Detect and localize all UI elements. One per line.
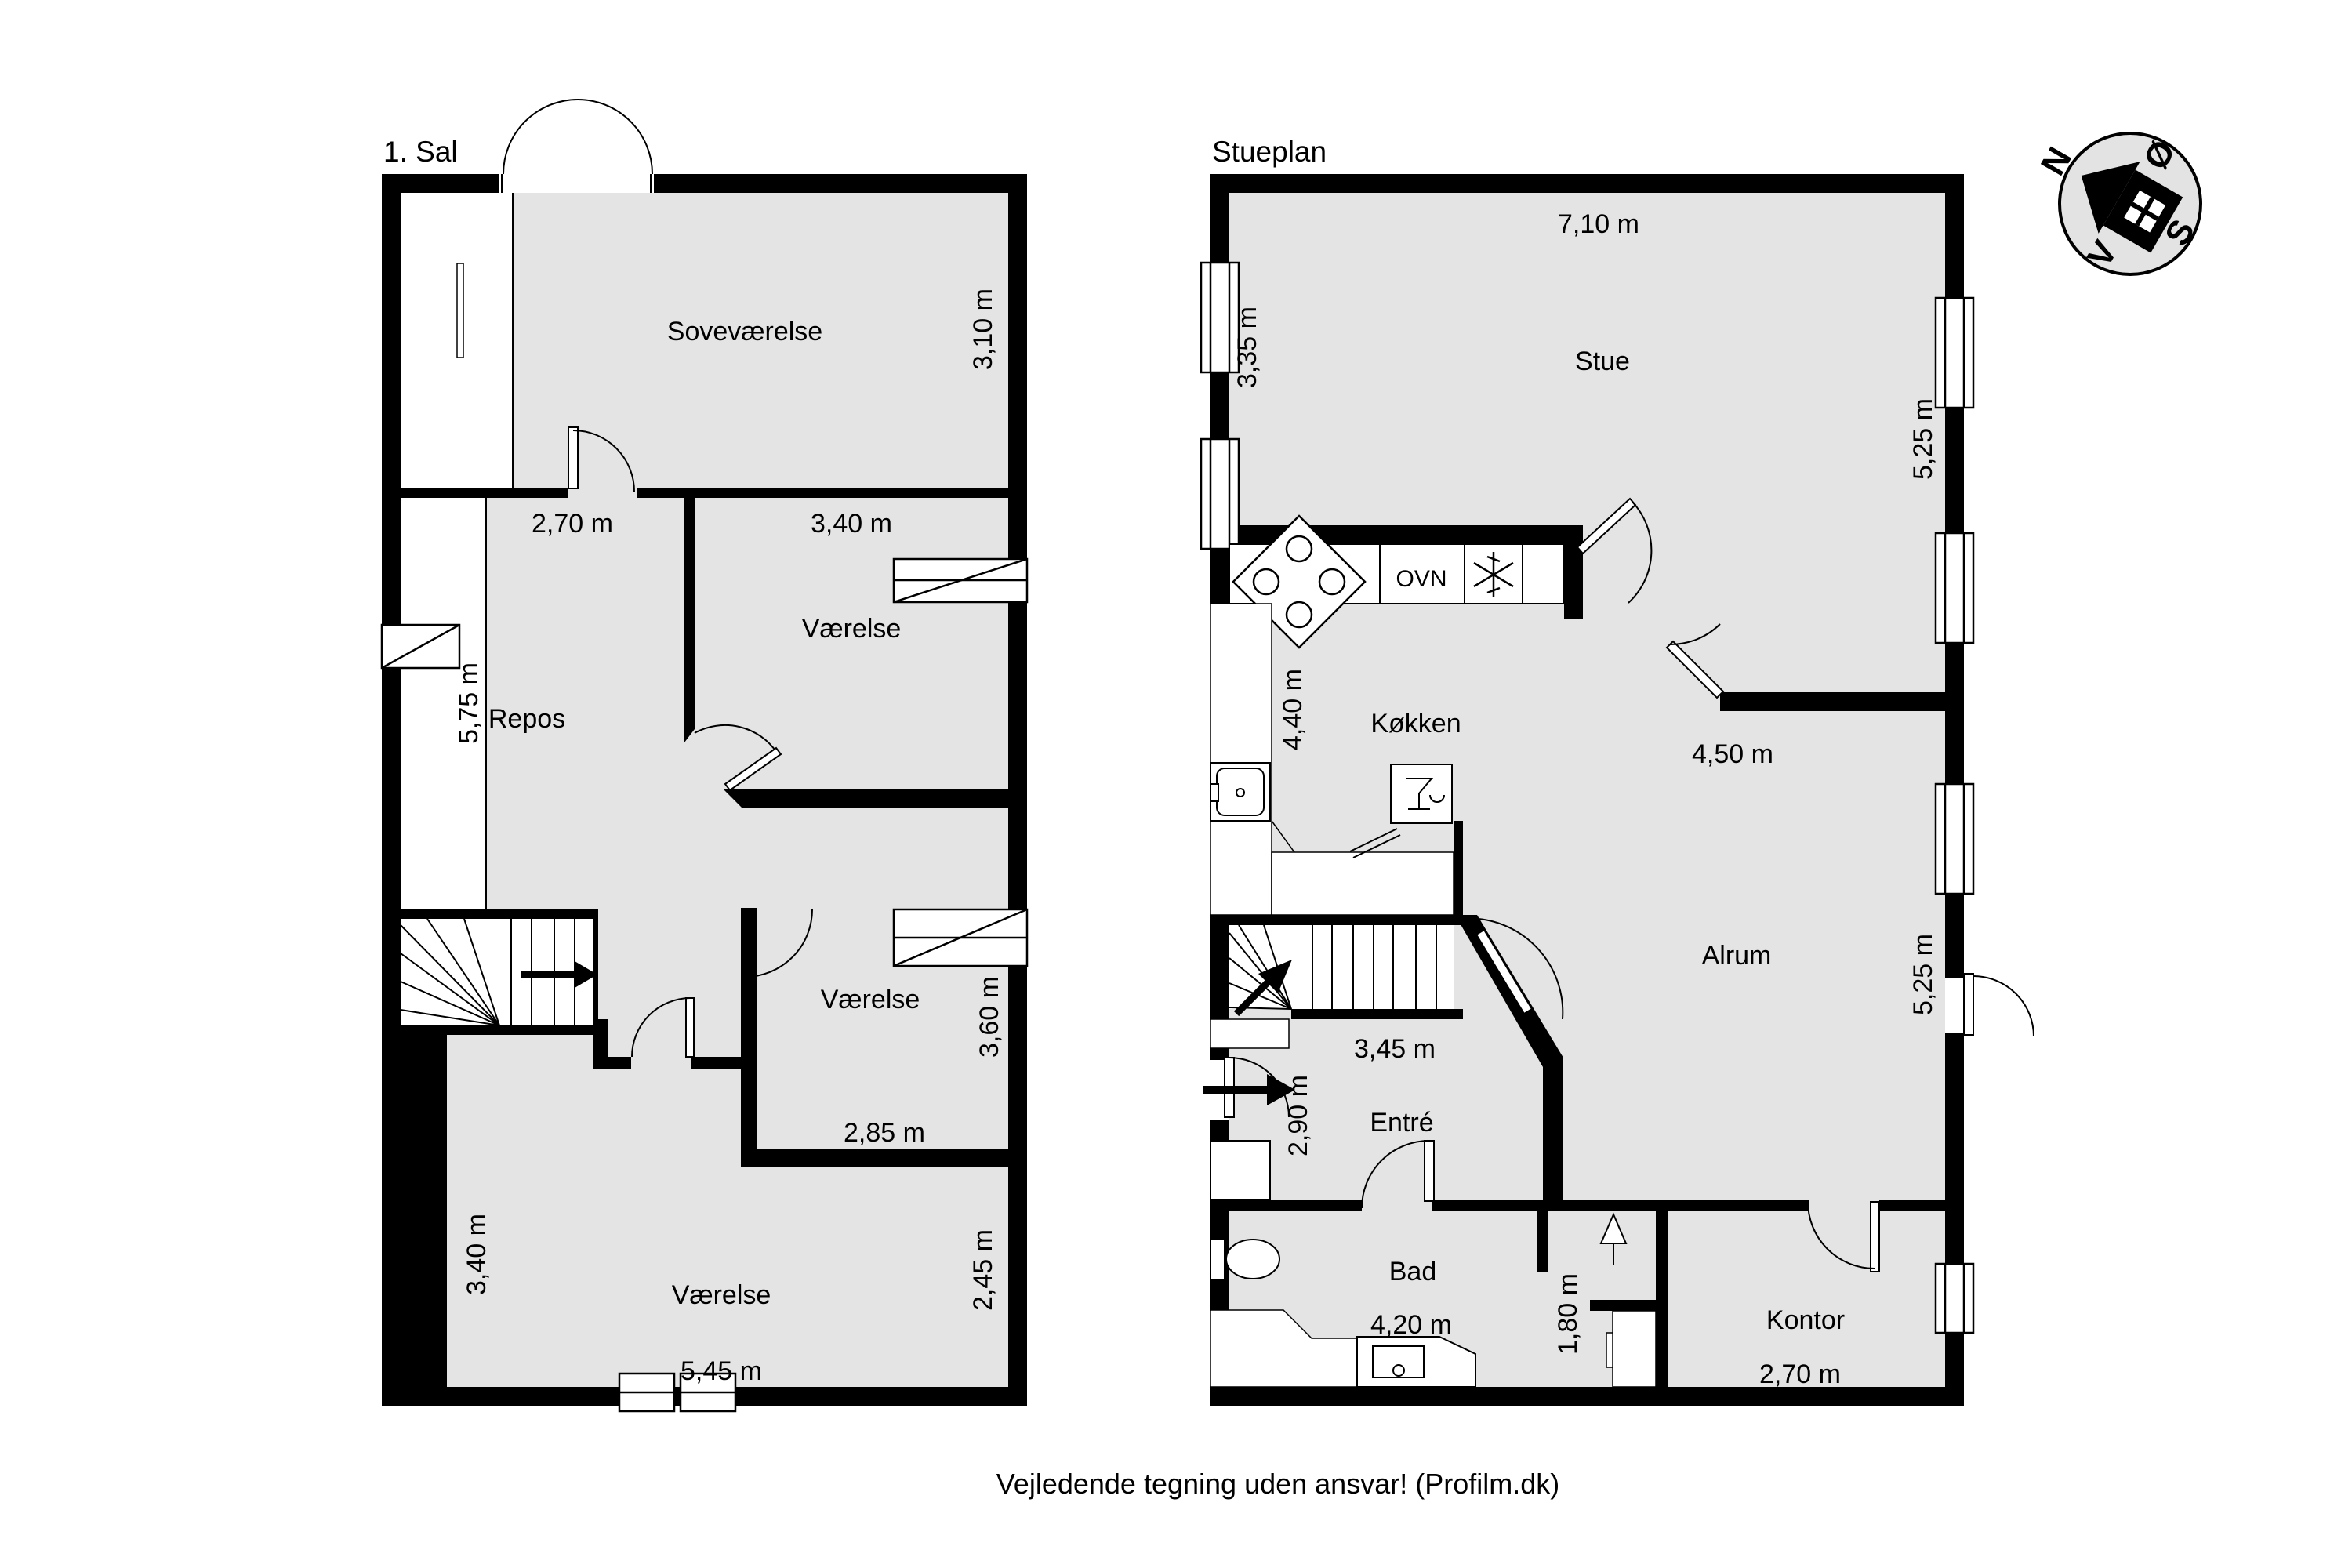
dim-180: 1,80 m (1553, 1273, 1583, 1355)
window-right-3 (1936, 784, 1973, 894)
dim-310: 3,10 m (968, 289, 998, 370)
window-vaerelse-mid (894, 909, 1027, 966)
plan-title-1-sal: 1. Sal (383, 136, 458, 168)
dim-575: 5,75 m (454, 662, 484, 744)
dim-450: 4,50 m (1692, 739, 1773, 769)
door-alrum-exterior (1945, 974, 2034, 1036)
window-left-2 (1201, 439, 1239, 549)
french-doors (499, 100, 654, 193)
dim-525a: 5,25 m (1908, 398, 1938, 480)
window-right-1 (1936, 298, 1973, 408)
window-bottom-1 (619, 1374, 674, 1411)
label-koekken: Køkken (1370, 709, 1461, 739)
toilet-icon (1210, 1239, 1279, 1280)
label-sovevaerelse: Soveværelse (667, 317, 822, 347)
dim-285: 2,85 m (844, 1118, 925, 1148)
label-vaerelse-top: Værelse (802, 614, 902, 644)
window-vaerelse-top (894, 559, 1027, 602)
label-stue: Stue (1575, 347, 1630, 376)
label-alrum: Alrum (1702, 941, 1772, 971)
label-vaerelse-bottom: Værelse (672, 1280, 771, 1310)
dishwasher-icon (1391, 764, 1452, 823)
dim-340: 3,40 m (811, 509, 892, 539)
plan-title-stueplan: Stueplan (1212, 136, 1327, 168)
window-kontor (1936, 1264, 1973, 1333)
staircase-upper (401, 919, 597, 1025)
window-right-2 (1936, 533, 1973, 643)
label-entre: Entré (1370, 1108, 1433, 1138)
kitchen-sink-icon (1210, 763, 1270, 821)
disclaimer-text: Vejledende tegning uden ansvar! (Profilm… (996, 1468, 1559, 1500)
floor-plan-1-sal: 1. Sal (382, 100, 1027, 1411)
dim-290: 2,90 m (1283, 1075, 1313, 1156)
dim-360: 3,60 m (975, 976, 1004, 1058)
dim-270: 2,70 m (532, 509, 613, 539)
dim-710: 7,10 m (1558, 209, 1639, 239)
label-repos: Repos (488, 704, 565, 734)
dim-525b: 5,25 m (1908, 934, 1938, 1015)
dim-420: 4,20 m (1370, 1310, 1452, 1340)
floor-plan-page: 1. Sal (0, 0, 2352, 1568)
dim-340b: 3,40 m (462, 1214, 492, 1295)
label-vaerelse-mid: Værelse (821, 985, 920, 1014)
kitchen-counter-left (1210, 604, 1272, 915)
label-kontor: Kontor (1766, 1305, 1845, 1335)
dim-440: 4,40 m (1278, 669, 1308, 750)
understair-closet (1272, 852, 1454, 915)
label-bad: Bad (1389, 1257, 1437, 1287)
dim-245: 2,45 m (968, 1229, 998, 1311)
hall-closet (1606, 1311, 1656, 1387)
compass-rose: N Ø S V (2005, 90, 2232, 301)
window-left-repos (382, 625, 459, 668)
entre-cabinet (1210, 1141, 1270, 1200)
dim-545: 5,45 m (681, 1356, 762, 1386)
oven-label: OVN (1396, 566, 1446, 592)
stair-landing (1210, 1019, 1289, 1048)
dim-345: 3,45 m (1354, 1034, 1436, 1064)
dim-270-kontor: 2,70 m (1759, 1359, 1841, 1389)
dim-335: 3,35 m (1232, 307, 1262, 388)
floor-plan-stueplan: Stueplan (1201, 136, 2034, 1406)
